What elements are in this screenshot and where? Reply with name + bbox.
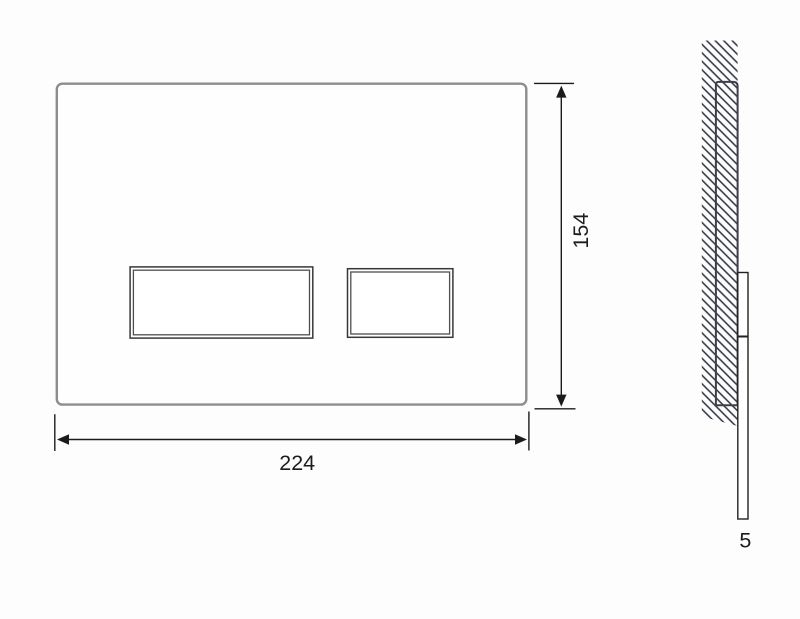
svg-text:154: 154 [569,213,593,249]
svg-text:5: 5 [739,529,751,553]
svg-text:224: 224 [279,451,315,475]
